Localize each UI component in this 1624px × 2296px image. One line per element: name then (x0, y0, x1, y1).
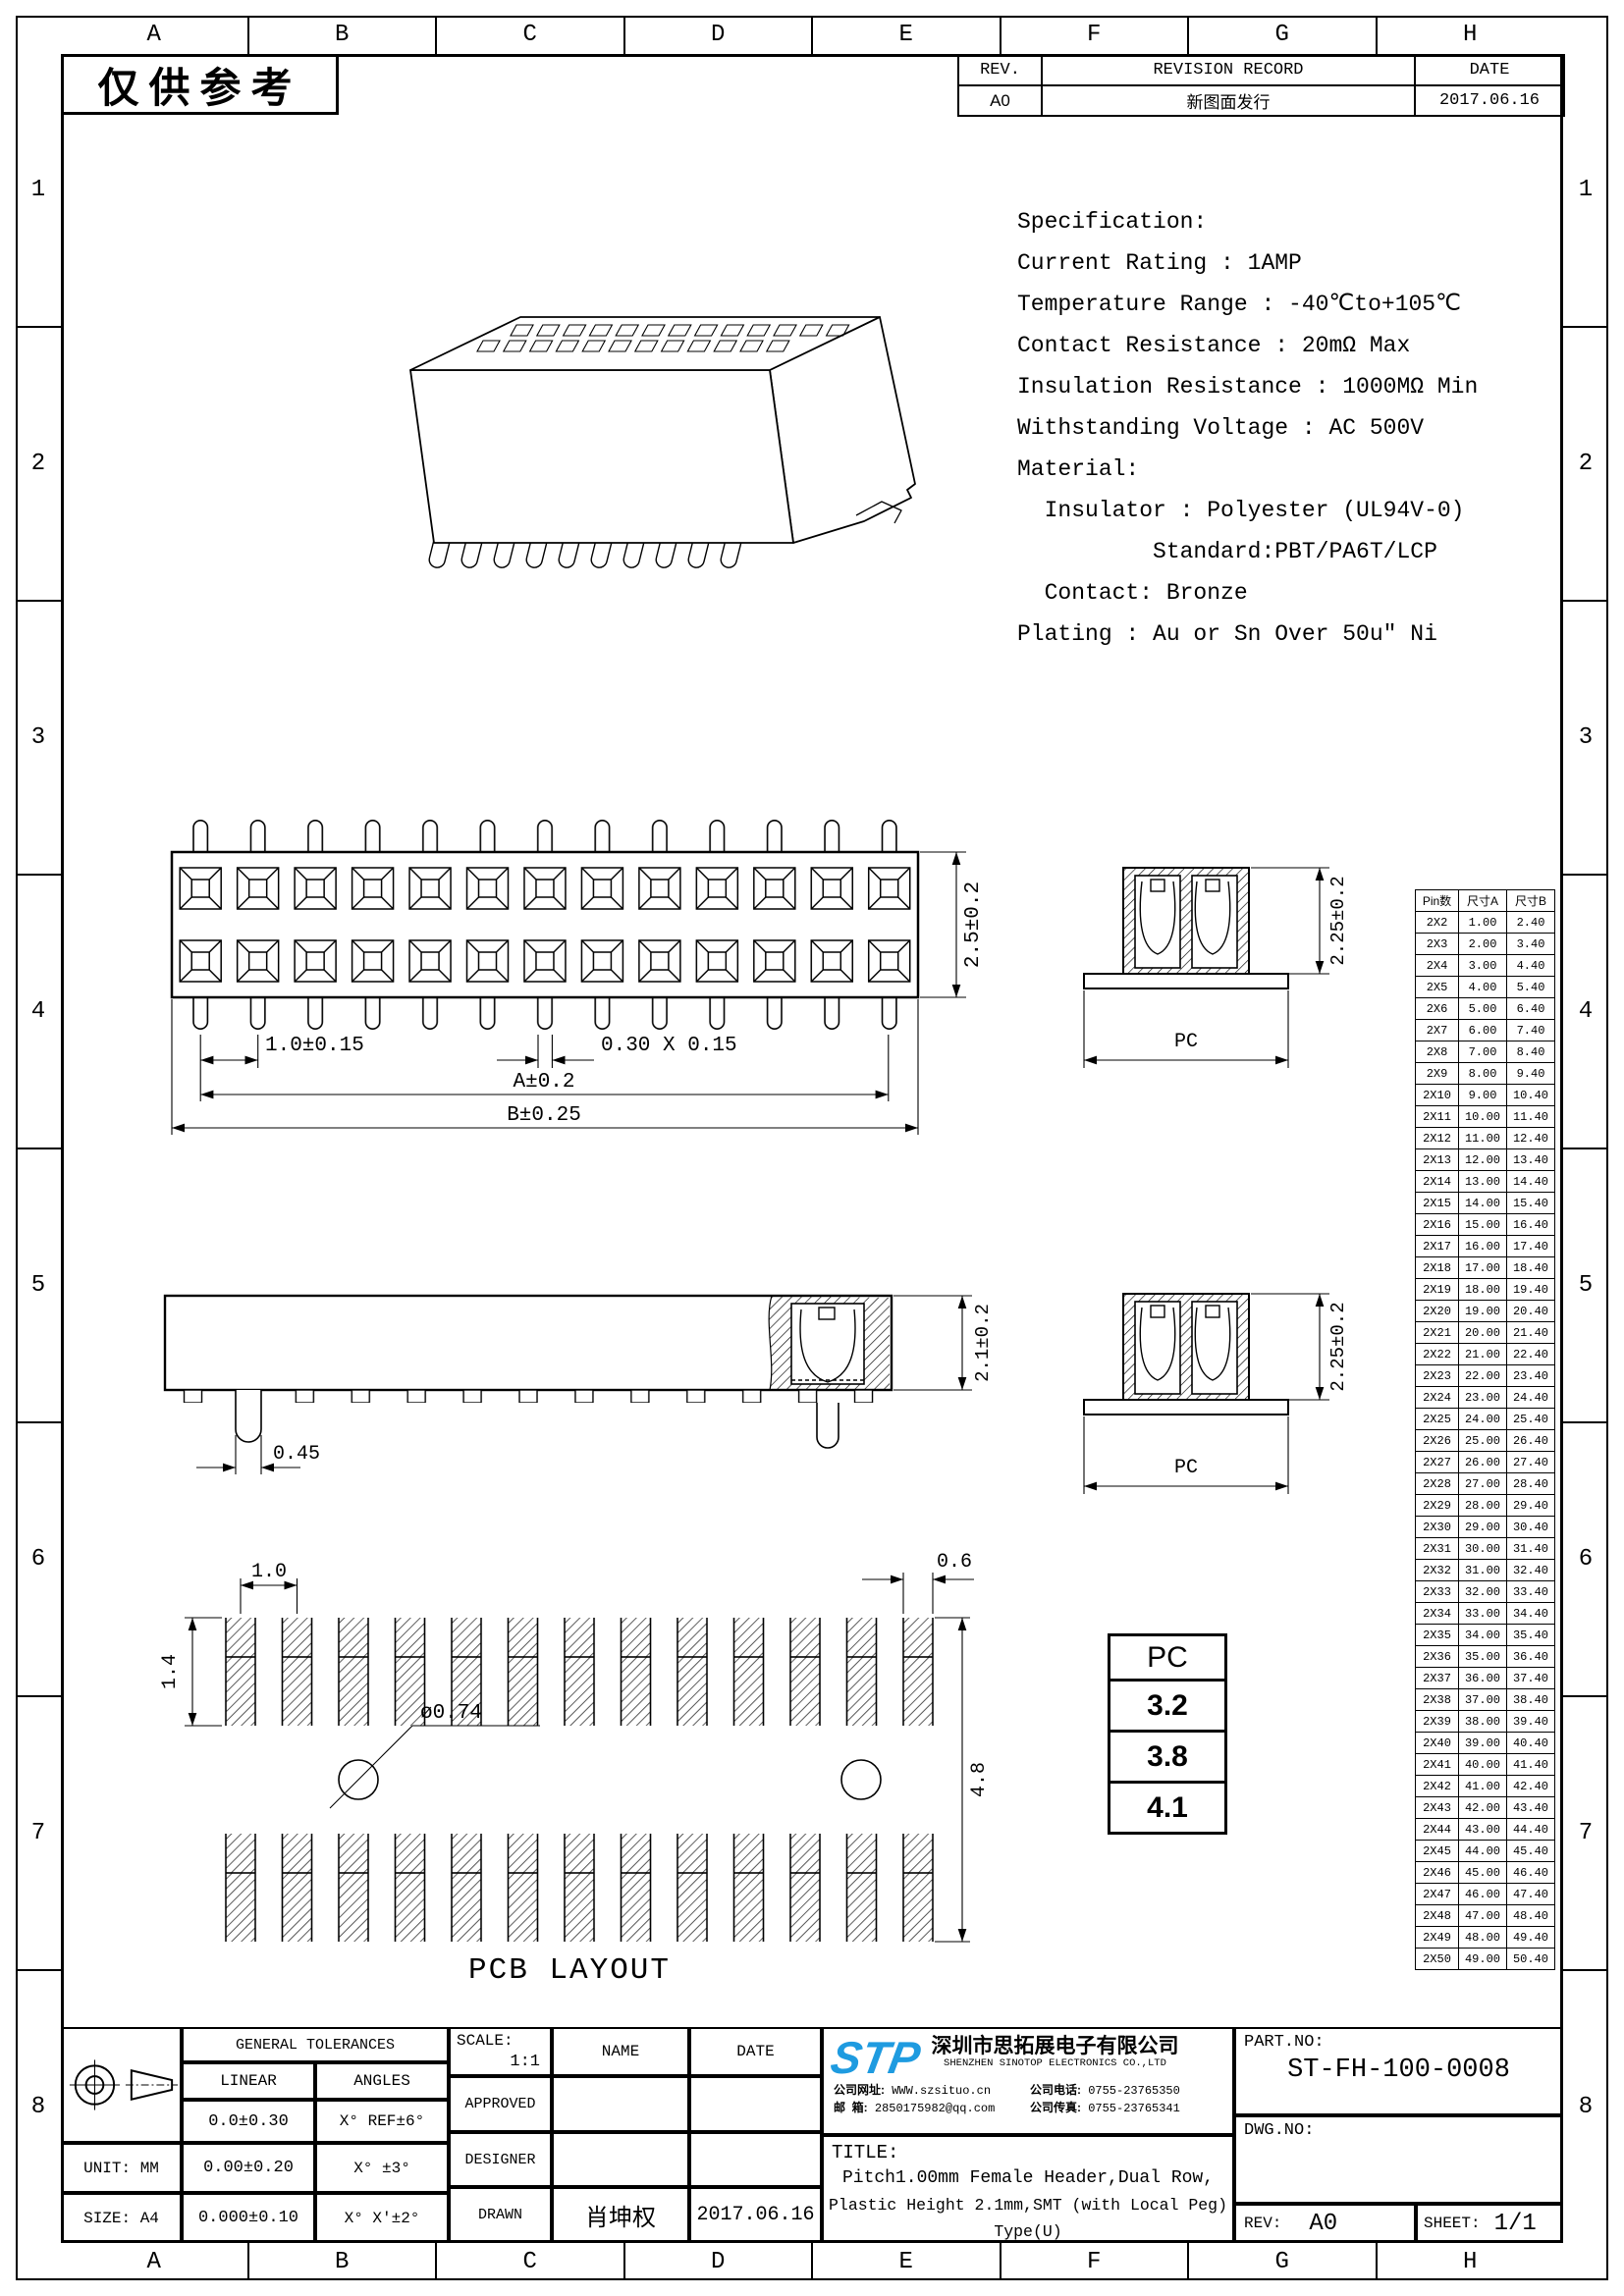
pin-table-row: 2X12 11.00 12.40 (1416, 1128, 1555, 1149)
smt-base (1084, 1400, 1288, 1415)
dim-b: 3.40 (1507, 934, 1555, 955)
pin-count: 2X45 (1416, 1841, 1459, 1862)
fax-value: 0755-23765341 (1088, 2102, 1180, 2115)
pin-count: 2X4 (1416, 955, 1459, 977)
pin-count: 2X22 (1416, 1344, 1459, 1365)
pin-table-row: 2X29 28.00 29.40 (1416, 1495, 1555, 1517)
grid-letter: B (249, 2243, 438, 2280)
record-value: 新图面发行 (1042, 85, 1415, 116)
company-cell: STP 深圳市思拓展电子有限公司 SHENZHEN SINOTOP ELECTR… (822, 2027, 1234, 2135)
dim-span-label: 4.8 (968, 1762, 991, 1797)
dim-a: 13.00 (1459, 1171, 1507, 1193)
pin-table-row: 2X8 7.00 8.40 (1416, 1041, 1555, 1063)
dim-a: 20.00 (1459, 1322, 1507, 1344)
dim-b: 44.40 (1507, 1819, 1555, 1841)
dim-a: 3.00 (1459, 955, 1507, 977)
grid-letter: H (1378, 16, 1564, 54)
dim-pitch-label: 1.0 (251, 1561, 287, 1583)
front-view: 2.5±0.2 1.0±0.15 0.30 X 0.15 A±0.2 B±0.2… (147, 815, 992, 1148)
company-name-cn: 深圳市思拓展电子有限公司 (931, 2035, 1178, 2057)
dim-a: 26.00 (1459, 1452, 1507, 1473)
bottom-pad-row (212, 1834, 949, 1942)
dim-height-label: 2.25±0.2 (1327, 876, 1349, 965)
dim-a: 1.00 (1459, 912, 1507, 934)
dim-b: 21.40 (1507, 1322, 1555, 1344)
pin-count: 2X49 (1416, 1927, 1459, 1949)
dim-b: 49.40 (1507, 1927, 1555, 1949)
grid-letter: E (813, 16, 1001, 54)
dim-b: 39.40 (1507, 1711, 1555, 1733)
dim-b: 27.40 (1507, 1452, 1555, 1473)
pin-table-row: 2X40 39.00 40.40 (1416, 1733, 1555, 1754)
pin-table-row: 2X20 19.00 20.40 (1416, 1301, 1555, 1322)
pins-col-header: Pin数 (1416, 890, 1459, 912)
dim-a: 6.00 (1459, 1020, 1507, 1041)
pin-table-row: 2X31 30.00 31.40 (1416, 1538, 1555, 1560)
dim-b: 50.40 (1507, 1949, 1555, 1970)
pin-table-row: 2X30 29.00 30.40 (1416, 1517, 1555, 1538)
website-label: 公司网址: (834, 2083, 885, 2097)
dim-a: 9.00 (1459, 1085, 1507, 1106)
dim-a: 22.00 (1459, 1365, 1507, 1387)
pin-table-row: 2X37 36.00 37.40 (1416, 1668, 1555, 1689)
isometric-view (373, 280, 943, 609)
pin-table-row: 2X38 37.00 38.40 (1416, 1689, 1555, 1711)
dim-a-label: A±0.2 (513, 1071, 574, 1094)
dim-b: 47.40 (1507, 1884, 1555, 1905)
dim-a: 8.00 (1459, 1063, 1507, 1085)
pin-table-row: 2X35 34.00 35.40 (1416, 1625, 1555, 1646)
dim-a: 10.00 (1459, 1106, 1507, 1128)
title-line2: Plastic Height 2.1mm,SMT (with Local Peg… (824, 2192, 1232, 2245)
phone-label: 公司电话: (1030, 2083, 1081, 2097)
dim-a: 11.00 (1459, 1128, 1507, 1149)
pin-table-row: 2X3 2.00 3.40 (1416, 934, 1555, 955)
pin-table-row: 2X25 24.00 25.40 (1416, 1409, 1555, 1430)
dim-a: 18.00 (1459, 1279, 1507, 1301)
pin-count: 2X34 (1416, 1603, 1459, 1625)
grid-number: 6 (16, 1423, 61, 1697)
spec-line: Standard:PBT/PA6T/LCP (1017, 531, 1547, 572)
grid-number: 4 (1563, 876, 1608, 1149)
pin-count: 2X38 (1416, 1689, 1459, 1711)
spec-line: Temperature Range : -40℃to+105℃ (1017, 284, 1547, 325)
solder-tabs (165, 1390, 892, 1403)
pin-count: 2X44 (1416, 1819, 1459, 1841)
pin-count: 2X6 (1416, 998, 1459, 1020)
pin-table-row: 2X47 46.00 47.40 (1416, 1884, 1555, 1905)
rev-cell: REV: A0 (1234, 2204, 1416, 2243)
dim-height-label: 2.5±0.2 (962, 881, 985, 968)
pin-table-row: 2X10 9.00 10.40 (1416, 1085, 1555, 1106)
pin-table-row: 2X21 20.00 21.40 (1416, 1322, 1555, 1344)
grid-number: 4 (16, 876, 61, 1149)
pin-table-row: 2X16 15.00 16.40 (1416, 1214, 1555, 1236)
dim-b: 11.40 (1507, 1106, 1555, 1128)
grid-letter: A (61, 2243, 249, 2280)
dim-b: 9.40 (1507, 1063, 1555, 1085)
size-cell: SIZE: A4 (61, 2193, 182, 2243)
dim-b-label: B±0.25 (507, 1104, 581, 1127)
dim-b: 13.40 (1507, 1149, 1555, 1171)
linear-header: LINEAR (182, 2062, 315, 2100)
rev-header: REV. (958, 55, 1042, 85)
company-logo: STP (828, 2035, 924, 2080)
grid-number: 8 (16, 1971, 61, 2243)
pin-table-row: 2X44 43.00 44.40 (1416, 1819, 1555, 1841)
grid-letter: D (625, 2243, 814, 2280)
pin-count: 2X43 (1416, 1797, 1459, 1819)
dim-b: 20.40 (1507, 1301, 1555, 1322)
pin-table-row: 2X11 10.00 11.40 (1416, 1106, 1555, 1128)
dim-a: 49.00 (1459, 1949, 1507, 1970)
dim-pc-label: PC (1174, 1457, 1198, 1479)
scale-label: SCALE: (457, 2032, 514, 2050)
dim-a: 35.00 (1459, 1646, 1507, 1668)
contact-grid (172, 852, 918, 997)
pin-table-row: 2X4 3.00 4.40 (1416, 955, 1555, 977)
dim-b: 19.40 (1507, 1279, 1555, 1301)
part-no-cell: PART.NO: ST-FH-100-0008 (1234, 2027, 1563, 2115)
rev-value: A0 (1309, 2211, 1337, 2237)
pin-count: 2X23 (1416, 1365, 1459, 1387)
pin-count: 2X9 (1416, 1063, 1459, 1085)
designer-name (552, 2132, 689, 2187)
dim-b: 17.40 (1507, 1236, 1555, 1257)
grid-letter: C (437, 16, 625, 54)
pin-count: 2X36 (1416, 1646, 1459, 1668)
spec-line: Contact: Bronze (1017, 572, 1547, 614)
pin-table-row: 2X27 26.00 27.40 (1416, 1452, 1555, 1473)
dim-pad-width-label: 0.6 (937, 1551, 972, 1574)
pin-count: 2X31 (1416, 1538, 1459, 1560)
grid-letter: E (813, 2243, 1001, 2280)
pin-count: 2X40 (1416, 1733, 1459, 1754)
dim-b: 10.40 (1507, 1085, 1555, 1106)
dim-b: 6.40 (1507, 998, 1555, 1020)
dim-a: 24.00 (1459, 1409, 1507, 1430)
pin-count: 2X37 (1416, 1668, 1459, 1689)
dim-pitch-label: 1.0±0.15 (265, 1035, 364, 1057)
pin-count: 2X29 (1416, 1495, 1459, 1517)
pc-value: 3.8 (1110, 1732, 1226, 1783)
pin-table-row: 2X34 33.00 34.40 (1416, 1603, 1555, 1625)
rev-label: REV: (1236, 2215, 1281, 2232)
spec-line: Specification: (1017, 201, 1547, 242)
dim-a: 43.00 (1459, 1819, 1507, 1841)
dim-b: 36.40 (1507, 1646, 1555, 1668)
pin-count: 2X19 (1416, 1279, 1459, 1301)
pin-count: 2X16 (1416, 1214, 1459, 1236)
pin-table-row: 2X18 17.00 18.40 (1416, 1257, 1555, 1279)
pin-count: 2X41 (1416, 1754, 1459, 1776)
pin-table-row: 2X13 12.00 13.40 (1416, 1149, 1555, 1171)
dim-a: 46.00 (1459, 1884, 1507, 1905)
grid-number: 3 (16, 602, 61, 876)
pin-count: 2X14 (1416, 1171, 1459, 1193)
scale-cell: SCALE: 1:1 (449, 2027, 552, 2076)
pin-count: 2X20 (1416, 1301, 1459, 1322)
dim-b: 34.40 (1507, 1603, 1555, 1625)
dim-a: 2.00 (1459, 934, 1507, 955)
specification-text: Specification:Current Rating : 1AMPTempe… (1017, 201, 1547, 655)
pin-table-row: 2X14 13.00 14.40 (1416, 1171, 1555, 1193)
pin-count: 2X26 (1416, 1430, 1459, 1452)
pin-table-row: 2X23 22.00 23.40 (1416, 1365, 1555, 1387)
dim-b: 28.40 (1507, 1473, 1555, 1495)
pin-count: 2X25 (1416, 1409, 1459, 1430)
dim-pc-label: PC (1174, 1031, 1198, 1053)
dim-a: 14.00 (1459, 1193, 1507, 1214)
pcb-layout-view: 1.0 1.4 0.6 ø0.74 4.8 PCB LAYOUT (157, 1549, 992, 1986)
dim-peg-label: 0.45 (273, 1443, 320, 1466)
dim-a: 25.00 (1459, 1430, 1507, 1452)
dim-a: 37.00 (1459, 1689, 1507, 1711)
revision-header-row: REV. REVISION RECORD DATE (958, 55, 1564, 85)
pin-table-row: 2X48 47.00 48.40 (1416, 1905, 1555, 1927)
angle-tol-1: X° REF±6° (315, 2100, 449, 2143)
dim-height-label: 2.1±0.2 (972, 1304, 994, 1382)
dim-b: 31.40 (1507, 1538, 1555, 1560)
grid-number: 7 (1563, 1697, 1608, 1971)
spec-line: Current Rating : 1AMP (1017, 242, 1547, 284)
pin-table-row: 2X41 40.00 41.40 (1416, 1754, 1555, 1776)
dim-b: 38.40 (1507, 1689, 1555, 1711)
pin-count: 2X15 (1416, 1193, 1459, 1214)
grid-letter: B (249, 16, 438, 54)
pin-table-row: 2X42 41.00 42.40 (1416, 1776, 1555, 1797)
pin-table-row: 2X6 5.00 6.40 (1416, 998, 1555, 1020)
sheet-value: 1/1 (1494, 2211, 1537, 2237)
spec-line: Material: (1017, 449, 1547, 490)
pin-count: 2X21 (1416, 1322, 1459, 1344)
dim-b: 37.40 (1507, 1668, 1555, 1689)
pin-count: 2X48 (1416, 1905, 1459, 1927)
grid-number: 7 (16, 1697, 61, 1971)
dim-a: 40.00 (1459, 1754, 1507, 1776)
drawn-label: DRAWN (449, 2187, 552, 2243)
grid-letter: H (1378, 2243, 1564, 2280)
designer-date (689, 2132, 822, 2187)
pin-count: 2X28 (1416, 1473, 1459, 1495)
pin-table-row: 2X33 32.00 33.40 (1416, 1581, 1555, 1603)
grid-letters-top: ABCDEFGH (61, 16, 1563, 54)
pin-table-row: 2X9 8.00 9.40 (1416, 1063, 1555, 1085)
grid-number: 1 (16, 54, 61, 328)
pin-table-row: 2X19 18.00 19.40 (1416, 1279, 1555, 1301)
email-value: 2850175982@qq.com (875, 2102, 995, 2115)
top-pins (172, 817, 918, 852)
angles-header: ANGLES (315, 2062, 449, 2100)
rev-value: A0 (958, 85, 1042, 116)
grid-letter: G (1189, 2243, 1378, 2280)
dim-b: 42.40 (1507, 1776, 1555, 1797)
grid-number: 5 (16, 1149, 61, 1423)
drawn-date: 2017.06.16 (689, 2187, 822, 2243)
dim-b: 12.40 (1507, 1128, 1555, 1149)
pin-table-row: 2X49 48.00 49.40 (1416, 1927, 1555, 1949)
scale-value: 1:1 (510, 2053, 540, 2071)
grid-letter: G (1189, 16, 1378, 54)
dim-b: 46.40 (1507, 1862, 1555, 1884)
pc-header: PC (1110, 1635, 1226, 1681)
linear-tol-2: 0.00±0.20 (182, 2143, 315, 2193)
pin-table-row: 2X17 16.00 17.40 (1416, 1236, 1555, 1257)
dim-b: 41.40 (1507, 1754, 1555, 1776)
approved-name (552, 2076, 689, 2132)
sheet-cell: SHEET: 1/1 (1416, 2204, 1563, 2243)
dim-b: 32.40 (1507, 1560, 1555, 1581)
grid-number: 6 (1563, 1423, 1608, 1697)
dwg-no-label: DWG.NO: (1236, 2117, 1561, 2140)
spec-line: Insulator : Polyester (UL94V-0) (1017, 490, 1547, 531)
pin-count: 2X42 (1416, 1776, 1459, 1797)
dim-pin-label: 0.30 X 0.15 (601, 1035, 737, 1057)
dim-a: 48.00 (1459, 1927, 1507, 1949)
drawing-sheet: ABCDEFGH ABCDEFGH 12345678 12345678 仅供参考… (0, 0, 1624, 2296)
side-view-top: 2.25±0.2 PC (1047, 850, 1361, 1095)
dim-b: 26.40 (1507, 1430, 1555, 1452)
dim-a: 7.00 (1459, 1041, 1507, 1063)
dim-b: 25.40 (1507, 1409, 1555, 1430)
linear-tol-3: 0.000±0.10 (182, 2193, 315, 2243)
dim-b: 5.40 (1507, 977, 1555, 998)
pin-count: 2X30 (1416, 1517, 1459, 1538)
dim-b: 45.40 (1507, 1841, 1555, 1862)
part-no-value: ST-FH-100-0008 (1236, 2056, 1561, 2085)
pin-count: 2X17 (1416, 1236, 1459, 1257)
pin-table-row: 2X24 23.00 24.40 (1416, 1387, 1555, 1409)
pc-value: 3.2 (1110, 1681, 1226, 1732)
name-header: NAME (552, 2027, 689, 2076)
spec-line: Plating : Au or Sn Over 50u″ Ni (1017, 614, 1547, 655)
pin-table-header: Pin数 尺寸A 尺寸B (1416, 890, 1555, 912)
locating-peg (236, 1390, 261, 1442)
dim-b: 22.40 (1507, 1344, 1555, 1365)
pin-count: 2X3 (1416, 934, 1459, 955)
angle-tol-2: X° ±3° (315, 2143, 449, 2193)
dim-a: 16.00 (1459, 1236, 1507, 1257)
section-view: 0.45 2.1±0.2 (135, 1282, 1029, 1503)
pcb-layout-title: PCB LAYOUT (468, 1953, 671, 1986)
dim-b: 24.40 (1507, 1387, 1555, 1409)
dim-a-col-header: 尺寸A (1459, 890, 1507, 912)
fax-label: 公司传真: (1030, 2101, 1081, 2114)
pin-count: 2X50 (1416, 1949, 1459, 1970)
pin-table-row: 2X15 14.00 15.40 (1416, 1193, 1555, 1214)
website-value: WWW.szsituo.cn (892, 2084, 991, 2098)
pin-table-row: 2X2 1.00 2.40 (1416, 912, 1555, 934)
unit-cell: UNIT: MM (61, 2143, 182, 2193)
dim-b: 16.40 (1507, 1214, 1555, 1236)
pin-count: 2X5 (1416, 977, 1459, 998)
pin-count: 2X7 (1416, 1020, 1459, 1041)
grid-numbers-left: 12345678 (16, 54, 61, 2243)
grid-number: 2 (16, 328, 61, 602)
revision-row: A0 新图面发行 2017.06.16 (958, 85, 1564, 116)
dim-b: 15.40 (1507, 1193, 1555, 1214)
dim-a: 17.00 (1459, 1257, 1507, 1279)
pin-table-row: 2X46 45.00 46.40 (1416, 1862, 1555, 1884)
dim-b: 23.40 (1507, 1365, 1555, 1387)
pin-table-row: 2X28 27.00 28.40 (1416, 1473, 1555, 1495)
pin-count: 2X24 (1416, 1387, 1459, 1409)
date-header: DATE (1415, 55, 1564, 85)
title-block: GENERAL TOLERANCES LINEAR ANGLES 0.0±0.3… (61, 2027, 1563, 2243)
dim-b: 40.40 (1507, 1733, 1555, 1754)
part-no-label: PART.NO: (1236, 2029, 1561, 2056)
dwg-no-cell: DWG.NO: (1234, 2115, 1563, 2204)
angle-tol-3: X° X'±2° (315, 2193, 449, 2243)
pin-table-row: 2X32 31.00 32.40 (1416, 1560, 1555, 1581)
dim-a: 23.00 (1459, 1387, 1507, 1409)
dim-b: 2.40 (1507, 912, 1555, 934)
email-label: 邮 箱: (834, 2101, 868, 2114)
dim-b: 14.40 (1507, 1171, 1555, 1193)
pc-value: 4.1 (1110, 1783, 1226, 1834)
dim-a: 36.00 (1459, 1668, 1507, 1689)
projection-symbol-cell (61, 2027, 182, 2143)
dim-b: 18.40 (1507, 1257, 1555, 1279)
pin-count: 2X35 (1416, 1625, 1459, 1646)
dim-b-col-header: 尺寸B (1507, 890, 1555, 912)
dim-a: 30.00 (1459, 1538, 1507, 1560)
phone-value: 0755-23765350 (1088, 2084, 1180, 2098)
grid-letter: C (437, 2243, 625, 2280)
pin-count: 2X2 (1416, 912, 1459, 934)
dim-a: 39.00 (1459, 1733, 1507, 1754)
grid-number: 8 (1563, 1971, 1608, 2243)
pin-count: 2X27 (1416, 1452, 1459, 1473)
approved-label: APPROVED (449, 2076, 552, 2132)
reference-only-stamp: 仅供参考 (61, 54, 339, 115)
pin-count: 2X11 (1416, 1106, 1459, 1128)
contact-tail (817, 1403, 839, 1448)
dim-a: 47.00 (1459, 1905, 1507, 1927)
grid-letters-bottom: ABCDEFGH (61, 2243, 1563, 2280)
date-value: 2017.06.16 (1415, 85, 1564, 116)
dim-b: 43.40 (1507, 1797, 1555, 1819)
dim-a: 28.00 (1459, 1495, 1507, 1517)
dim-a: 12.00 (1459, 1149, 1507, 1171)
pin-table-row: 2X50 49.00 50.40 (1416, 1949, 1555, 1970)
approved-date (689, 2076, 822, 2132)
dim-height-label: 2.25±0.2 (1327, 1302, 1349, 1391)
date-header: DATE (689, 2027, 822, 2076)
pin-count: 2X46 (1416, 1862, 1459, 1884)
side-view-bottom: 2.25±0.2 PC (1047, 1276, 1361, 1522)
grid-letter: F (1001, 16, 1190, 54)
dim-pad-height-label: 1.4 (159, 1654, 182, 1689)
dim-b: 8.40 (1507, 1041, 1555, 1063)
pin-count: 2X33 (1416, 1581, 1459, 1603)
pin-count: 2X32 (1416, 1560, 1459, 1581)
dim-a: 21.00 (1459, 1344, 1507, 1365)
dim-a: 5.00 (1459, 998, 1507, 1020)
pin-count: 2X39 (1416, 1711, 1459, 1733)
pin-table-row: 2X5 4.00 5.40 (1416, 977, 1555, 998)
title-line1: Pitch1.00mm Female Header,Dual Row, (824, 2165, 1232, 2192)
grid-number: 2 (1563, 328, 1608, 602)
pin-table-row: 2X7 6.00 7.40 (1416, 1020, 1555, 1041)
dim-b: 35.40 (1507, 1625, 1555, 1646)
record-header: REVISION RECORD (1042, 55, 1415, 85)
dim-hole-label: ø0.74 (420, 1702, 482, 1725)
dim-a: 42.00 (1459, 1797, 1507, 1819)
third-angle-projection-icon (64, 2031, 180, 2139)
pin-count: 2X12 (1416, 1128, 1459, 1149)
dim-a: 15.00 (1459, 1214, 1507, 1236)
